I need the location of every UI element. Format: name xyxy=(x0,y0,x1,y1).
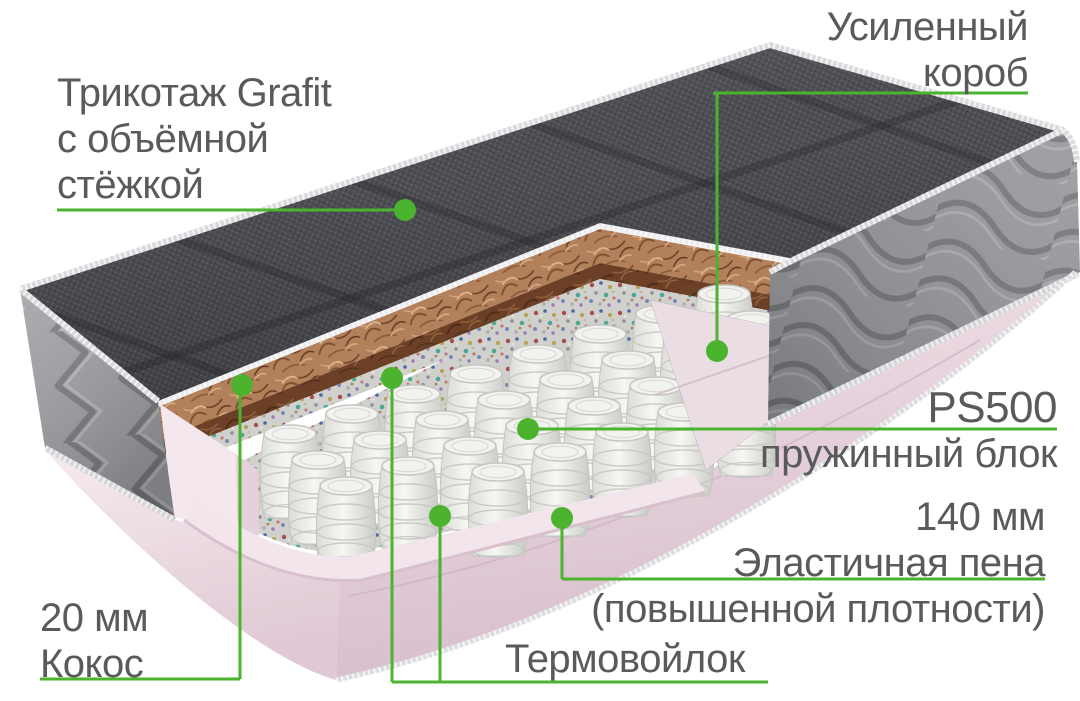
label-spring-block: PS500 пружинный блок xyxy=(760,385,1057,477)
label-reinforced-box: Усиленный короб xyxy=(827,4,1028,96)
label-elastic-foam-name: Эластичная пена xyxy=(591,540,1045,586)
label-thermo-felt: Термовойлок xyxy=(505,636,745,682)
label-top-fabric-line3: стёжкой xyxy=(57,162,331,208)
label-elastic-foam-size: 140 мм xyxy=(591,494,1045,540)
label-spring-block-name: пружинный блок xyxy=(760,431,1057,477)
foam-marker-dot xyxy=(551,507,573,529)
mattress-infographic: Трикотаж Grafit с объёмной стёжкой Усиле… xyxy=(0,0,1080,701)
coconut-marker-dot xyxy=(231,374,253,396)
label-top-fabric-line2: с объёмной xyxy=(57,116,331,162)
label-coconut-name: Кокос xyxy=(40,641,148,687)
label-reinforced-box-line2: короб xyxy=(827,50,1028,96)
felt-marker-dot-lower xyxy=(429,505,451,527)
label-spring-block-model: PS500 xyxy=(760,385,1057,431)
box-marker-dot xyxy=(706,340,728,362)
springs-marker-dot xyxy=(517,418,539,440)
label-reinforced-box-line1: Усиленный xyxy=(827,4,1028,50)
label-top-fabric: Трикотаж Grafit с объёмной стёжкой xyxy=(57,70,331,208)
label-coconut-size: 20 мм xyxy=(40,595,148,641)
label-elastic-foam-note: (повышенной плотности) xyxy=(591,586,1045,632)
felt-marker-dot-upper xyxy=(381,367,403,389)
label-coconut: 20 мм Кокос xyxy=(40,595,148,687)
fabric-marker-dot xyxy=(394,199,416,221)
label-elastic-foam: 140 мм Эластичная пена (повышенной плотн… xyxy=(591,494,1045,632)
label-thermo-felt-name: Термовойлок xyxy=(505,636,745,682)
label-top-fabric-line1: Трикотаж Grafit xyxy=(57,70,331,116)
